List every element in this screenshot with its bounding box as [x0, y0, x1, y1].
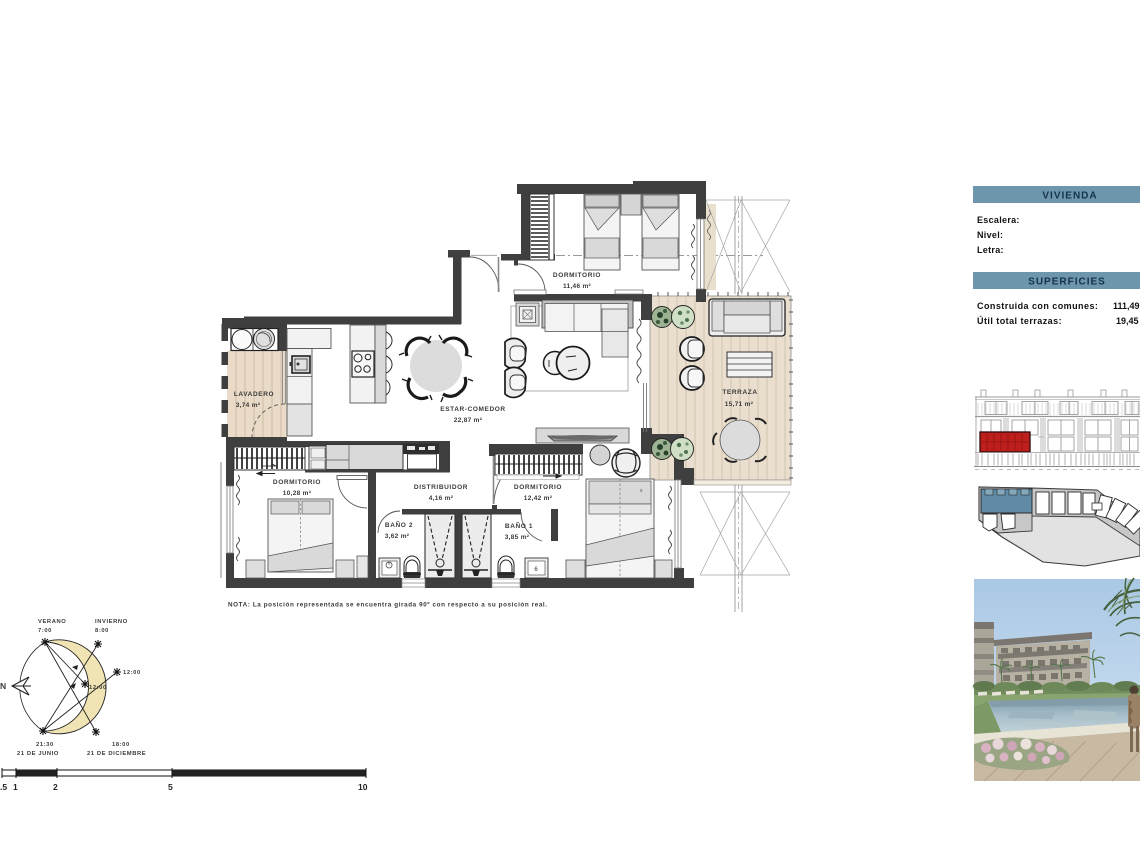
svg-text:TERRAZA: TERRAZA — [722, 389, 757, 396]
svg-text:VIVIENDA: VIVIENDA — [1042, 191, 1097, 202]
svg-text:INVIERNO: INVIERNO — [95, 619, 128, 625]
svg-text:18:00: 18:00 — [112, 742, 130, 748]
svg-text:DORMITORIO: DORMITORIO — [514, 484, 562, 491]
svg-text:19,45: 19,45 — [1116, 316, 1139, 326]
svg-text:8:00: 8:00 — [95, 628, 109, 634]
svg-text:ESTAR-COMEDOR: ESTAR-COMEDOR — [440, 406, 505, 413]
svg-text:N: N — [0, 681, 7, 691]
svg-text:3,62 m²: 3,62 m² — [385, 533, 410, 540]
svg-text:SUPERFICIES: SUPERFICIES — [1028, 277, 1106, 288]
svg-text:3,74 m²: 3,74 m² — [236, 402, 261, 409]
svg-text:12,42 m²: 12,42 m² — [524, 495, 553, 502]
svg-text:3,85 m²: 3,85 m² — [505, 534, 530, 541]
svg-text:.5: .5 — [0, 782, 7, 792]
svg-text:Construida con comunes:: Construida con comunes: — [977, 301, 1098, 311]
svg-text:111,49: 111,49 — [1113, 301, 1140, 311]
svg-text:VERANO: VERANO — [38, 619, 66, 625]
svg-text:22,87 m²: 22,87 m² — [454, 417, 483, 424]
svg-text:12:00: 12:00 — [89, 685, 107, 691]
svg-text:21 DE JUNIO: 21 DE JUNIO — [17, 751, 59, 757]
svg-text:Útil total terrazas:: Útil total terrazas: — [977, 315, 1062, 326]
svg-text:Nivel:: Nivel: — [977, 230, 1003, 240]
svg-text:21:30: 21:30 — [36, 742, 54, 748]
svg-text:2: 2 — [53, 782, 58, 792]
svg-text:4,16 m²: 4,16 m² — [429, 495, 454, 502]
svg-text:15,71 m²: 15,71 m² — [725, 401, 754, 408]
svg-text:LAVADERO: LAVADERO — [234, 391, 274, 398]
svg-text:BAÑO 1: BAÑO 1 — [505, 521, 533, 530]
svg-text:BAÑO 2: BAÑO 2 — [385, 520, 413, 529]
svg-text:DISTRIBUIDOR: DISTRIBUIDOR — [414, 484, 468, 491]
svg-text:10,28 m²: 10,28 m² — [283, 490, 312, 497]
svg-text:DORMITORIO: DORMITORIO — [273, 479, 321, 486]
svg-text:Escalera:: Escalera: — [977, 215, 1020, 225]
svg-text:DORMITORIO: DORMITORIO — [553, 272, 601, 279]
svg-text:1: 1 — [13, 782, 18, 792]
svg-text:11,46 m²: 11,46 m² — [563, 283, 592, 290]
svg-text:12:00: 12:00 — [123, 670, 141, 676]
svg-text:10: 10 — [358, 782, 368, 792]
svg-text:NOTA: La posición representada: NOTA: La posición representada se encuen… — [228, 602, 548, 609]
svg-text:Letra:: Letra: — [977, 245, 1004, 255]
svg-text:21 DE DICIEMBRE: 21 DE DICIEMBRE — [87, 751, 146, 757]
svg-text:5: 5 — [168, 782, 173, 792]
svg-text:7:00: 7:00 — [38, 628, 52, 634]
